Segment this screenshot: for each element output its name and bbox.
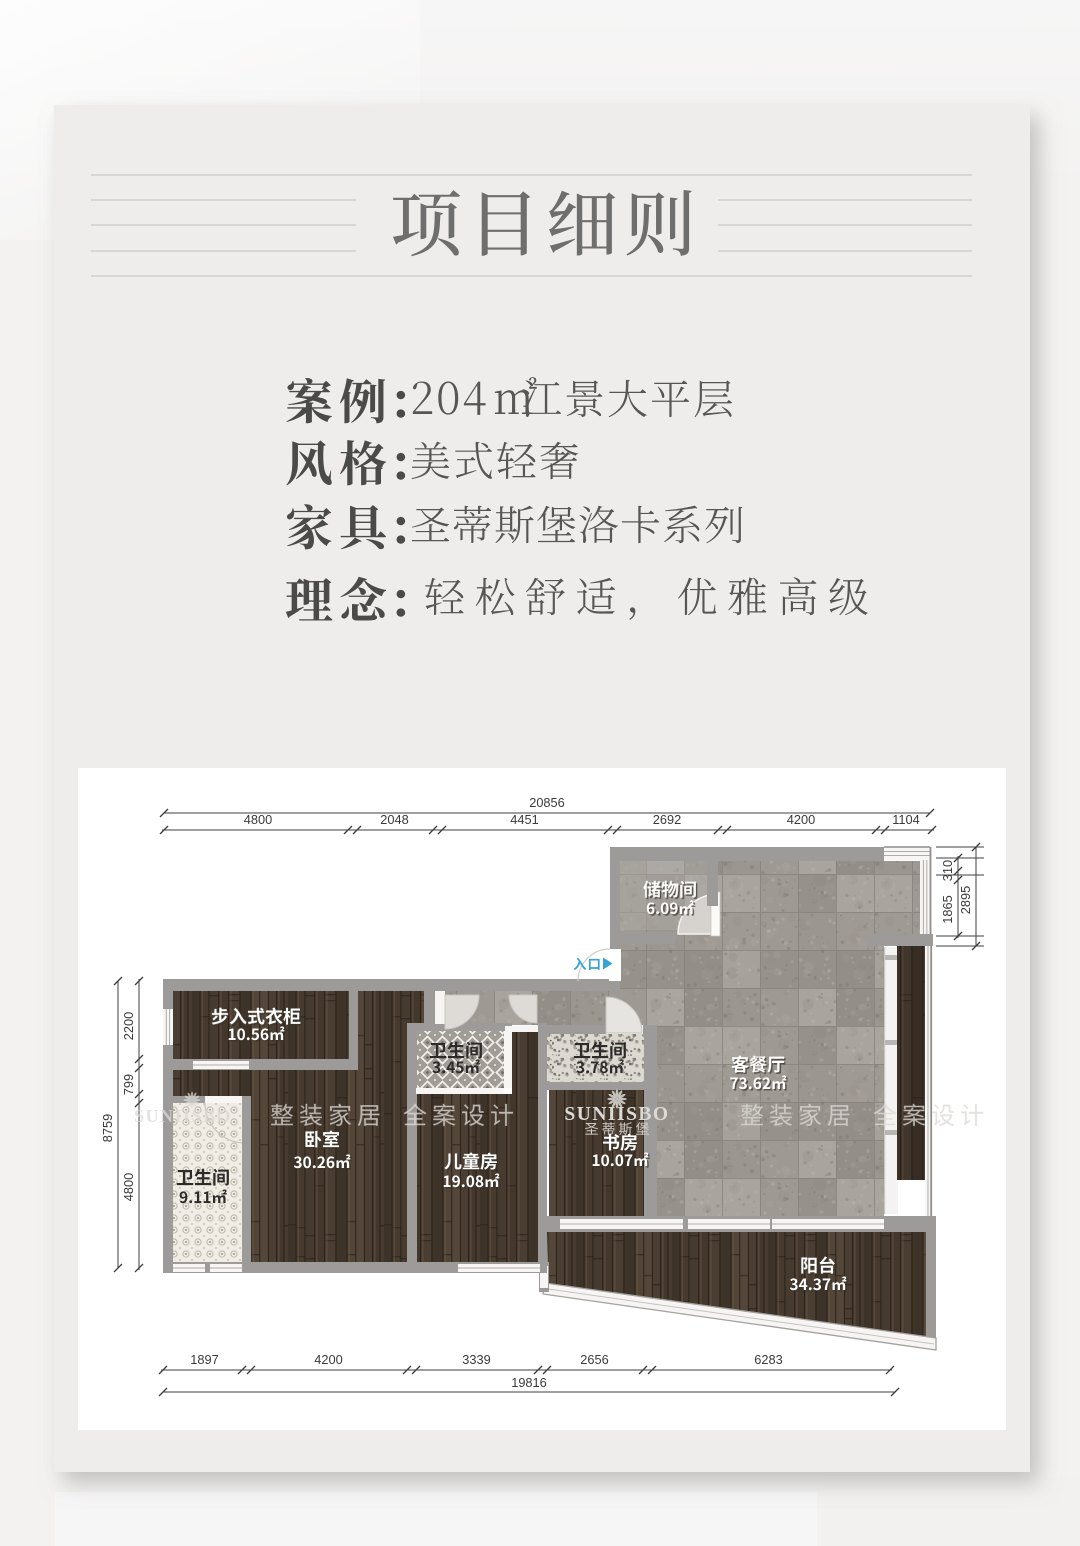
svg-text:4200: 4200	[787, 812, 815, 827]
svg-text:799: 799	[121, 1074, 136, 1095]
svg-text:2200: 2200	[121, 1012, 136, 1040]
svg-text:4800: 4800	[244, 812, 272, 827]
svg-text:8759: 8759	[100, 1114, 115, 1142]
svg-text:19816: 19816	[511, 1375, 547, 1390]
svg-text:2048: 2048	[380, 812, 408, 827]
svg-text:1865: 1865	[940, 895, 955, 923]
svg-text:SUNIISBO: SUNIISBO	[134, 1106, 232, 1126]
svg-text:4200: 4200	[314, 1352, 342, 1367]
svg-text:3339: 3339	[462, 1352, 490, 1367]
svg-text:2692: 2692	[653, 812, 681, 827]
svg-text:6283: 6283	[754, 1352, 782, 1367]
svg-text:1897: 1897	[190, 1352, 218, 1367]
svg-text:1104: 1104	[892, 812, 920, 827]
svg-text:4800: 4800	[121, 1173, 136, 1201]
svg-text:2656: 2656	[580, 1352, 608, 1367]
svg-text:2895: 2895	[958, 886, 973, 914]
svg-text:4451: 4451	[510, 812, 538, 827]
svg-text:20856: 20856	[529, 795, 565, 810]
svg-text:310: 310	[940, 860, 955, 881]
svg-text:SUNIISBO: SUNIISBO	[564, 1104, 669, 1125]
